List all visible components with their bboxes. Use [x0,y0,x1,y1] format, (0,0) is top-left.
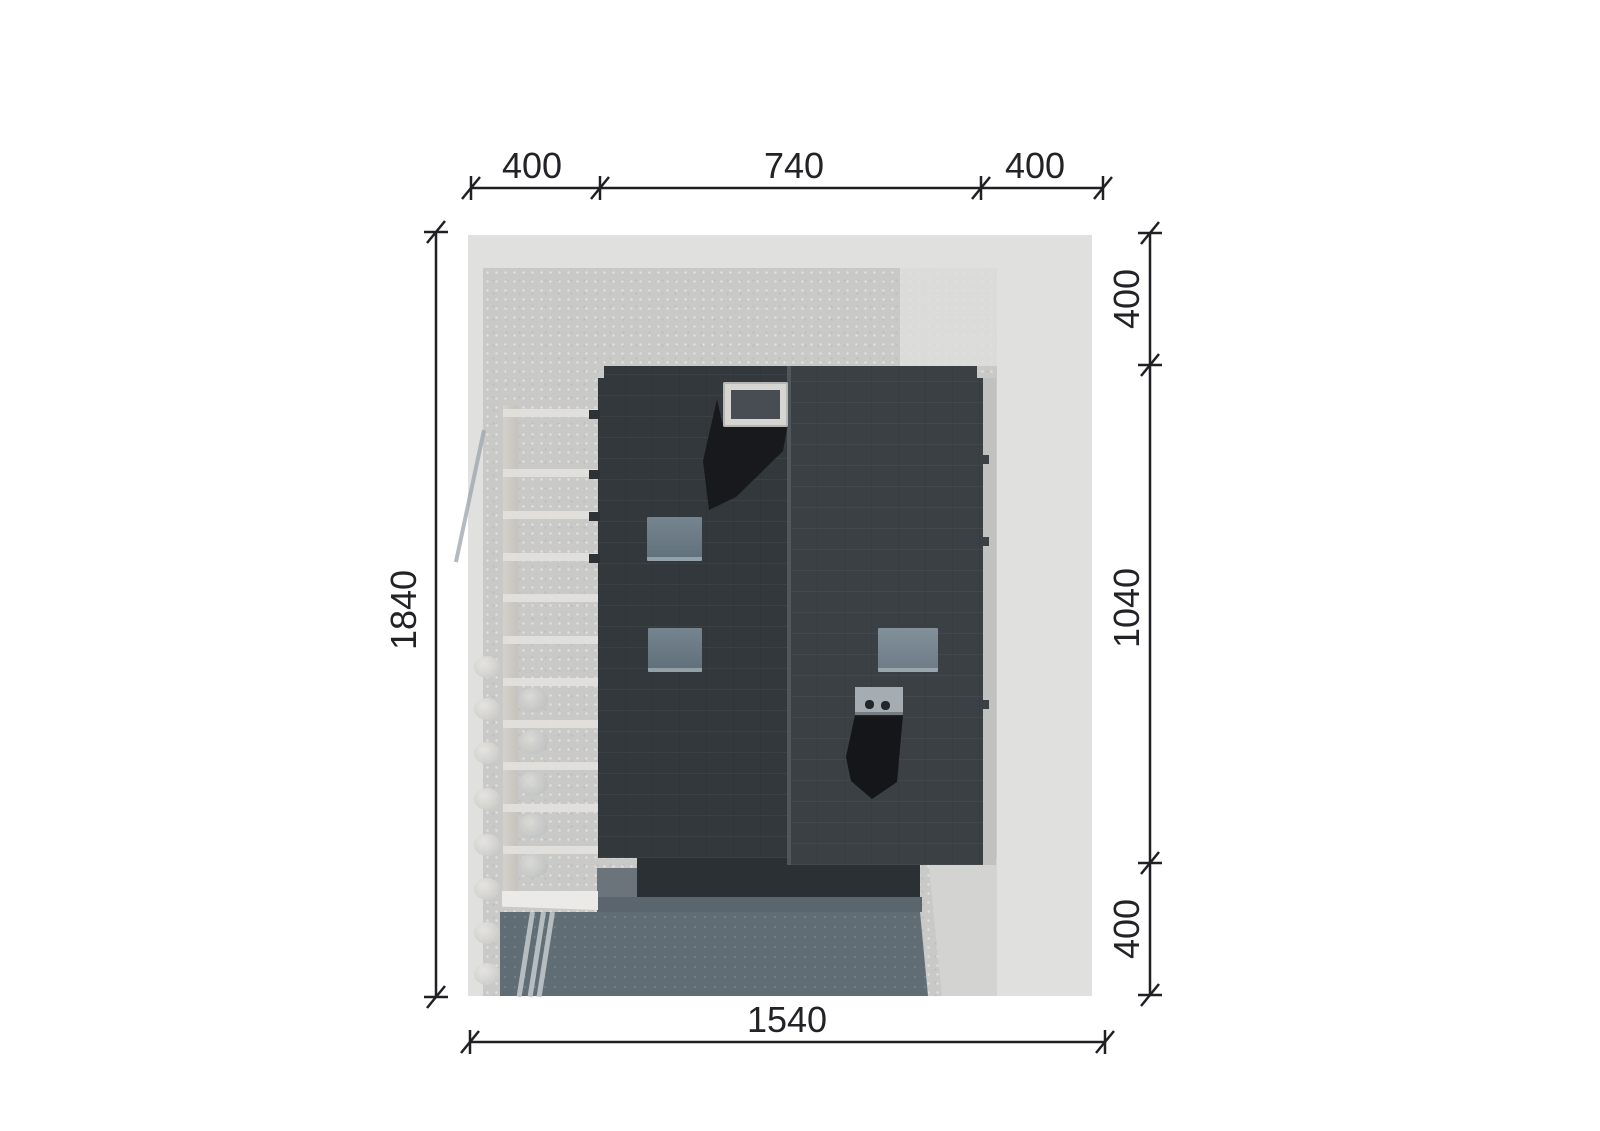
bush [518,730,548,754]
beam-bracket [589,512,600,521]
dim-right-bottom: 400 [1109,899,1145,959]
dim-top-left: 400 [502,148,562,184]
beam-bracket [589,554,600,563]
gutter-bracket [983,537,989,546]
pergola-beam [503,636,598,644]
roof-ridge [787,366,791,865]
site-plan-sheet: 400 740 400 1540 1840 400 1040 400 [0,0,1600,1131]
bush [518,854,548,878]
bush [474,742,500,764]
bush [474,963,500,985]
dim-right-middle: 1040 [1109,568,1145,648]
dim-left-total: 1840 [386,570,422,650]
bush [474,922,500,944]
pergola-post [503,405,518,905]
bush [474,788,500,810]
building-shadow-bottom [500,912,928,996]
pergola-beam [503,553,598,561]
pergola-beam [503,762,598,770]
roof-right-section [790,366,983,865]
pergola-beam [503,409,598,417]
pergola-beam [503,804,598,812]
beam-bracket [589,410,600,419]
pergola-beam [503,594,598,602]
bush [518,814,548,838]
bush [474,656,500,678]
bush [518,772,548,796]
roof-skylight [647,517,702,561]
dim-bottom-total: 1540 [747,1002,827,1038]
deck-edge [597,897,922,912]
roof-skylight [648,628,702,672]
vent-pipe-icon [865,700,874,709]
pergola-beam [503,469,598,477]
pergola-beam [503,678,598,686]
bush [474,878,500,900]
pergola-beam [503,511,598,519]
pergola-beam [503,846,598,854]
bush [474,698,500,720]
beam-bracket [589,470,600,479]
pad-highlight [900,268,997,366]
chimney-skylight-glass [731,390,780,419]
bush [474,834,500,856]
vent-pipe-icon [881,701,890,710]
roof-gutter [983,378,996,865]
dim-right-top: 400 [1109,269,1145,329]
pergola-beam [503,720,598,728]
dim-top-right: 400 [1005,148,1065,184]
gutter-bracket [983,455,989,464]
gutter-bracket [983,700,989,709]
roof-vent-box [855,687,903,715]
roof-skylight [878,628,938,672]
bush [518,688,548,712]
dim-top-middle: 740 [764,148,824,184]
